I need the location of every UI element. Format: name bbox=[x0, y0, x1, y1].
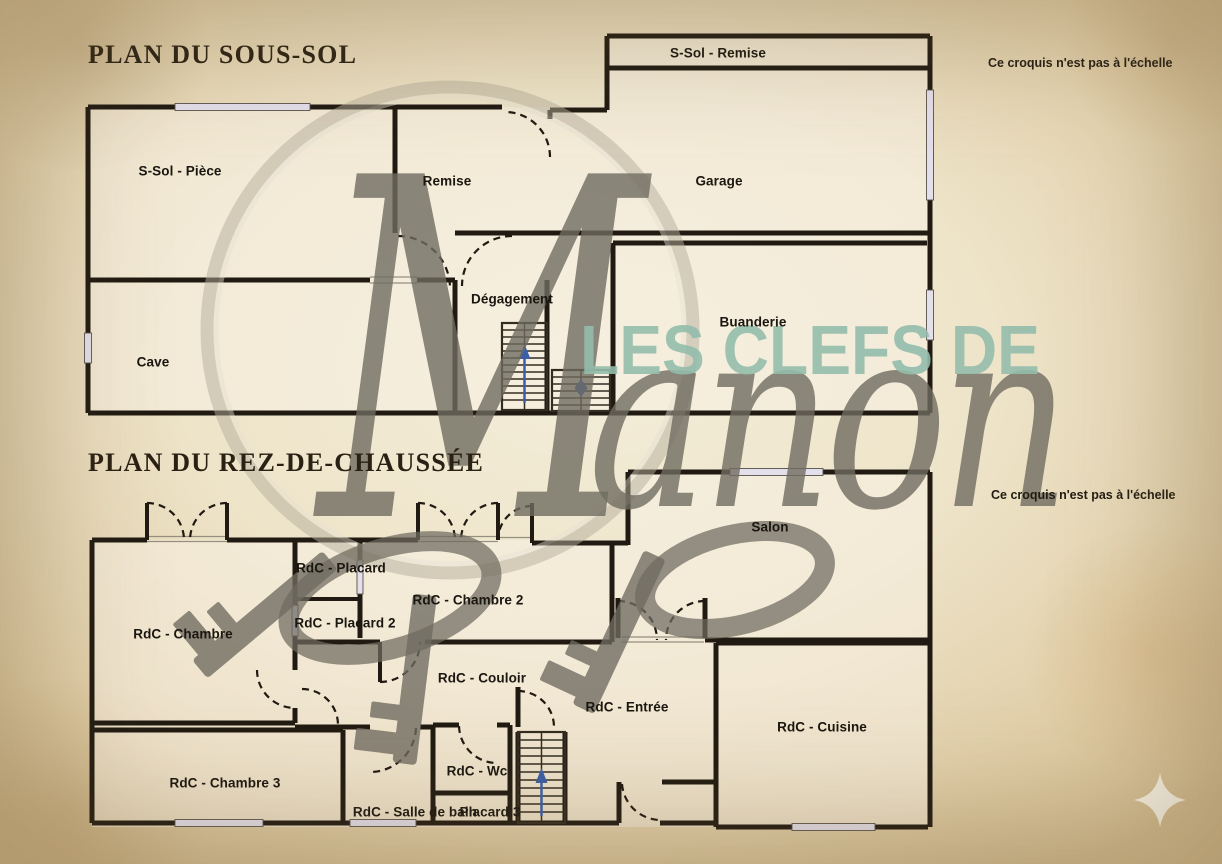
room-label-chambre3: RdC - Chambre 3 bbox=[169, 776, 280, 791]
room-label-placard3: Placard 3 bbox=[460, 805, 521, 820]
basement-scale-note: Ce croquis n'est pas à l'échelle bbox=[988, 56, 1173, 70]
room-label-salon: Salon bbox=[751, 520, 788, 535]
room-label-couloir: RdC - Couloir bbox=[438, 671, 526, 686]
ground-title: PLAN DU REZ-DE-CHAUSSÉE bbox=[88, 448, 484, 478]
floor-plan-drawing: M anon LES CLEFS DE bbox=[0, 0, 1222, 864]
room-label-placard: RdC - Placard bbox=[296, 561, 386, 576]
room-label-degagement: Dégagement bbox=[471, 292, 553, 307]
room-label-ssol-piece: S-Sol - Pièce bbox=[138, 164, 221, 179]
room-label-salle-de-bain: RdC - Salle de bain bbox=[353, 805, 477, 820]
room-label-remise: Remise bbox=[423, 174, 472, 189]
ground-scale-note: Ce croquis n'est pas à l'échelle bbox=[991, 488, 1176, 502]
room-label-cave: Cave bbox=[137, 355, 170, 370]
room-label-buanderie: Buanderie bbox=[720, 315, 787, 330]
room-label-ssol-remise: S-Sol - Remise bbox=[670, 46, 766, 61]
room-label-chambre: RdC - Chambre bbox=[133, 627, 233, 642]
room-label-placard2: RdC - Placard 2 bbox=[294, 616, 395, 631]
floor-plan-page: M anon LES CLEFS DE PLAN DU SOUS-SOL PLA… bbox=[0, 0, 1222, 864]
watermark-brand-line: LES CLEFS DE bbox=[580, 311, 1040, 389]
room-label-wc: RdC - Wc bbox=[447, 764, 508, 779]
room-label-garage: Garage bbox=[695, 174, 742, 189]
basement-title: PLAN DU SOUS-SOL bbox=[88, 40, 357, 70]
sparkle-icon bbox=[1134, 773, 1186, 827]
room-label-entree: RdC - Entrée bbox=[586, 700, 669, 715]
room-label-cuisine: RdC - Cuisine bbox=[777, 720, 867, 735]
room-label-chambre2: RdC - Chambre 2 bbox=[412, 593, 523, 608]
